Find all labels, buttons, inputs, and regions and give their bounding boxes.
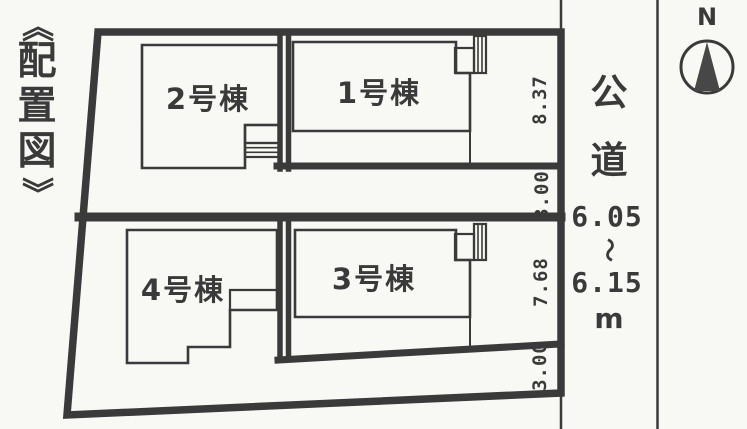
building-1-stairs-hatch bbox=[478, 36, 482, 73]
building-2-porch bbox=[245, 125, 280, 143]
road-name-char-1: 公 bbox=[589, 74, 629, 111]
road-name-char-2: 道 bbox=[589, 142, 629, 179]
building-1-porch bbox=[455, 48, 474, 73]
road-width-max: 6.15 bbox=[567, 269, 647, 297]
parcel3-bottom-border bbox=[278, 344, 561, 360]
compass-north-label: N bbox=[692, 5, 722, 29]
building-2-stairs bbox=[245, 143, 280, 157]
building-2-stairs-hatch bbox=[245, 148, 280, 153]
building-3-label: 3号棟 bbox=[294, 265, 454, 294]
plan-title: 《 配 置 図 》 bbox=[13, 10, 61, 209]
road-range-mark: 〜 bbox=[594, 238, 624, 264]
building-1-label: 1号棟 bbox=[299, 79, 459, 108]
dimension-lower-strip: 3.00 bbox=[531, 334, 553, 398]
building-2-label: 2号棟 bbox=[128, 85, 288, 114]
compass-needle bbox=[694, 42, 720, 91]
site-plan-page: 《 配 置 図 》 1号棟 2号棟 3号棟 4号棟 8.37 3.00 7.68… bbox=[0, 0, 747, 429]
building-3-stairs bbox=[474, 224, 486, 260]
dimension-upper-strip: 3.00 bbox=[533, 163, 555, 227]
dimension-upper-frontage: 8.37 bbox=[531, 68, 553, 132]
title-open-bracket: 《 bbox=[21, 2, 53, 50]
dimension-lower-frontage: 7.68 bbox=[532, 250, 554, 314]
building-3-porch bbox=[455, 234, 474, 260]
title-close-bracket: 》 bbox=[21, 169, 53, 217]
road-width-unit: m bbox=[589, 305, 629, 333]
title-char-2: 置 bbox=[13, 87, 61, 132]
building-1-stairs bbox=[474, 36, 486, 73]
road-width-min: 6.05 bbox=[567, 203, 647, 231]
building-3-stairs-hatch bbox=[478, 224, 482, 260]
building-4-label: 4号棟 bbox=[103, 276, 263, 305]
